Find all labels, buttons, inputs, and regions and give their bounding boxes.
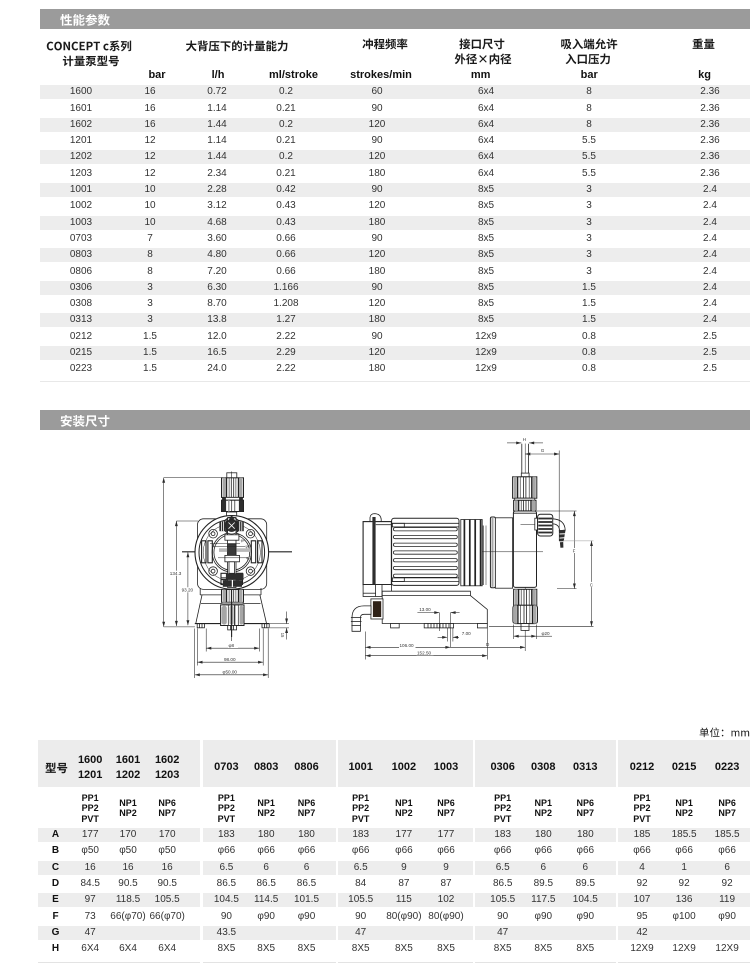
- svg-text:D: D: [486, 642, 490, 647]
- svg-text:C: C: [590, 582, 593, 587]
- svg-text:134.3: 134.3: [170, 571, 182, 576]
- svg-text:7.00: 7.00: [462, 631, 471, 636]
- svg-text:φA: φA: [241, 539, 246, 543]
- svg-text:H: H: [523, 437, 526, 442]
- svg-text:φ20: φ20: [542, 631, 551, 636]
- svg-text:F: F: [573, 548, 576, 553]
- svg-text:93.20: 93.20: [182, 588, 194, 593]
- svg-text:φC: φC: [246, 556, 251, 560]
- svg-text:G: G: [541, 448, 545, 453]
- svg-text:106.00: 106.00: [400, 643, 414, 648]
- svg-text:φ50.00: φ50.00: [223, 669, 238, 674]
- svg-text:φB: φB: [245, 545, 250, 549]
- svg-text:φ8: φ8: [229, 643, 235, 648]
- svg-text:15: 15: [280, 633, 285, 638]
- svg-text:98.00: 98.00: [224, 657, 236, 662]
- svg-text:152.50: 152.50: [417, 651, 431, 656]
- svg-text:13.00: 13.00: [419, 607, 431, 612]
